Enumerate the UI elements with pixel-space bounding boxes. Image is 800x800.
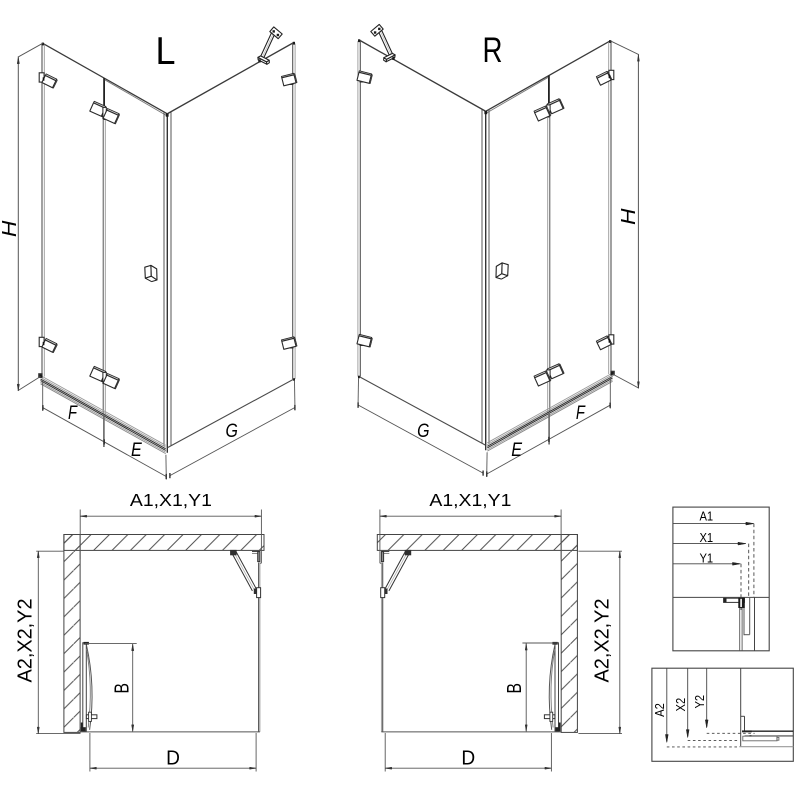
svg-text:B: B bbox=[504, 683, 526, 694]
svg-text:B: B bbox=[112, 683, 134, 694]
svg-text:X2: X2 bbox=[673, 698, 688, 712]
svg-text:H: H bbox=[618, 208, 640, 225]
svg-text:X1: X1 bbox=[699, 530, 713, 545]
svg-text:H: H bbox=[0, 220, 21, 237]
svg-text:A2,X2,Y2: A2,X2,Y2 bbox=[15, 599, 37, 683]
svg-text:R: R bbox=[483, 31, 503, 70]
svg-text:D: D bbox=[166, 746, 180, 769]
svg-text:A1,X1,Y1: A1,X1,Y1 bbox=[130, 490, 212, 510]
svg-text:A2: A2 bbox=[652, 703, 667, 717]
svg-text:A1,X1,Y1: A1,X1,Y1 bbox=[429, 490, 511, 510]
svg-text:F: F bbox=[68, 403, 78, 424]
svg-text:G: G bbox=[226, 421, 238, 442]
svg-text:Y2: Y2 bbox=[692, 695, 707, 709]
svg-text:D: D bbox=[461, 746, 475, 769]
svg-text:E: E bbox=[131, 440, 142, 461]
svg-text:E: E bbox=[511, 440, 522, 461]
svg-text:A2,X2,Y2: A2,X2,Y2 bbox=[592, 599, 614, 683]
svg-text:Y1: Y1 bbox=[699, 550, 713, 565]
svg-text:F: F bbox=[576, 403, 586, 424]
svg-text:A1: A1 bbox=[699, 509, 713, 524]
svg-text:G: G bbox=[417, 421, 429, 442]
svg-text:L: L bbox=[156, 30, 176, 73]
